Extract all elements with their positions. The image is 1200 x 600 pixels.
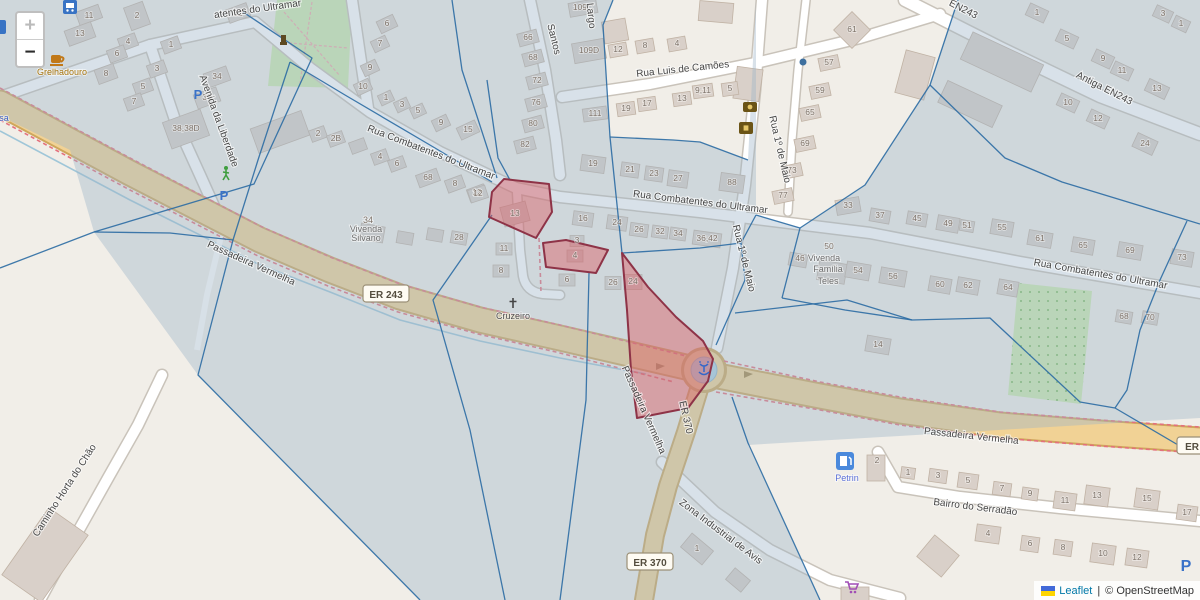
house-number: 50 bbox=[824, 241, 834, 251]
house-number: 33 bbox=[843, 200, 853, 210]
house-number: 7 bbox=[132, 96, 137, 106]
svg-text:ER 243: ER 243 bbox=[369, 290, 403, 301]
well-icon bbox=[743, 102, 757, 112]
building bbox=[601, 18, 628, 44]
house-number: 37 bbox=[875, 210, 885, 220]
house-number: 51 bbox=[962, 220, 972, 230]
house-number: 11 bbox=[500, 243, 509, 253]
house-number: 5 bbox=[966, 475, 971, 485]
house-number: 9 bbox=[1101, 53, 1106, 63]
tree-dot-icon bbox=[800, 59, 807, 66]
poi-label: sa bbox=[0, 113, 9, 123]
house-number: 11 bbox=[85, 10, 94, 20]
house-number: 34 bbox=[673, 228, 683, 238]
road-ref-badge: ER 243 bbox=[363, 285, 409, 302]
house-number: 49 bbox=[943, 218, 953, 228]
poi-label: Cruzeiro bbox=[496, 311, 530, 321]
poi-label: Família bbox=[813, 264, 843, 274]
house-number: 9;11 bbox=[695, 85, 711, 95]
house-number: 54 bbox=[853, 265, 863, 275]
house-number: 3 bbox=[155, 63, 160, 73]
house-number: 6 bbox=[385, 18, 390, 28]
house-number: 26 bbox=[634, 224, 644, 234]
house-number: 15 bbox=[463, 124, 473, 134]
map-tiles: P P P 11132468135732343638;38D6791013591… bbox=[0, 0, 1200, 600]
house-number: 9 bbox=[1028, 488, 1033, 498]
svg-text:ER 370: ER 370 bbox=[633, 558, 667, 569]
parking-icon: P bbox=[1181, 558, 1192, 575]
well-icon bbox=[739, 122, 753, 134]
road-ref-badge: ER 24 bbox=[1177, 437, 1200, 454]
house-number: 66 bbox=[523, 32, 533, 42]
house-number: 16 bbox=[578, 213, 588, 223]
house-number: 8 bbox=[1061, 542, 1066, 552]
house-number: 55 bbox=[997, 222, 1007, 232]
house-number: 7 bbox=[1000, 483, 1005, 493]
house-number: 27 bbox=[673, 173, 683, 183]
house-number: 13 bbox=[1152, 83, 1162, 93]
house-number: 19 bbox=[621, 103, 631, 113]
house-number: 24 bbox=[1140, 138, 1150, 148]
parking-icon: P bbox=[220, 188, 229, 203]
ukraine-flag-icon bbox=[1041, 586, 1055, 596]
house-number: 69 bbox=[800, 138, 810, 148]
house-number: 80 bbox=[528, 118, 538, 128]
house-number: 13 bbox=[677, 93, 687, 103]
house-number: 2 bbox=[875, 455, 880, 465]
cafe-icon bbox=[50, 55, 64, 66]
house-number: 23 bbox=[649, 168, 659, 178]
house-number: 76 bbox=[531, 97, 541, 107]
house-number: 21 bbox=[625, 164, 635, 174]
house-number: 59 bbox=[815, 85, 825, 95]
house-number: 1 bbox=[1035, 7, 1040, 17]
zoom-out-button[interactable]: − bbox=[17, 40, 43, 66]
house-number: 17 bbox=[1182, 507, 1192, 517]
house-number: 5 bbox=[728, 83, 733, 93]
house-number: 24 bbox=[628, 276, 638, 286]
house-number: 1 bbox=[695, 543, 700, 553]
house-number: 4 bbox=[573, 250, 578, 260]
house-number: 19 bbox=[588, 158, 598, 168]
svg-text:P: P bbox=[220, 188, 229, 203]
house-number: 62 bbox=[963, 280, 973, 290]
house-number: 68 bbox=[423, 172, 433, 182]
house-number: 2 bbox=[316, 128, 321, 138]
house-number: 13 bbox=[510, 208, 520, 218]
poi-label: Petrin bbox=[835, 473, 859, 483]
house-number: 8 bbox=[104, 68, 109, 78]
house-number: 8 bbox=[453, 178, 458, 188]
road-ref-badge: ER 370 bbox=[627, 553, 673, 570]
house-number: 82 bbox=[520, 139, 530, 149]
house-number: 5 bbox=[416, 105, 421, 115]
poi-label: Grelhadouro bbox=[37, 67, 87, 77]
house-number: 8 bbox=[643, 40, 648, 50]
house-number: 10 bbox=[1063, 97, 1073, 107]
house-number: 61 bbox=[1035, 233, 1045, 243]
house-number: 7 bbox=[378, 38, 383, 48]
house-number: 111 bbox=[589, 108, 602, 118]
house-number: 3 bbox=[1161, 8, 1166, 18]
house-number: 11 bbox=[1118, 65, 1127, 75]
house-number: 1 bbox=[169, 39, 174, 49]
attribution-separator: | bbox=[1097, 585, 1100, 597]
house-number: 38;38D bbox=[172, 123, 199, 133]
attribution-bar: Leaflet | © OpenStreetMap bbox=[1034, 581, 1200, 600]
building bbox=[698, 1, 734, 24]
house-number: 10 bbox=[358, 81, 368, 91]
house-number: 28 bbox=[454, 232, 464, 242]
house-number: 46 bbox=[795, 253, 805, 263]
house-number: 2 bbox=[135, 10, 140, 20]
map-canvas[interactable]: P P P 11132468135732343638;38D6791013591… bbox=[0, 0, 1200, 600]
osm-copyright[interactable]: © OpenStreetMap bbox=[1105, 585, 1194, 597]
house-number: 45 bbox=[912, 213, 922, 223]
house-number: 68 bbox=[528, 52, 538, 62]
house-number: 65 bbox=[805, 107, 815, 117]
house-number: 9 bbox=[368, 62, 373, 72]
house-number: 73 bbox=[1177, 252, 1187, 262]
house-number: 12 bbox=[473, 188, 483, 198]
house-number: 32 bbox=[655, 226, 665, 236]
poi-label: Vivenda bbox=[808, 253, 840, 263]
house-number: 2B bbox=[331, 133, 342, 143]
house-number: 10 bbox=[1098, 548, 1108, 558]
house-number: 4 bbox=[126, 36, 131, 46]
house-number: 36;42 bbox=[696, 233, 718, 243]
house-number: 61 bbox=[847, 24, 857, 34]
house-number: 12 bbox=[1093, 113, 1103, 123]
poi-blue-icon bbox=[0, 20, 6, 34]
house-number: 1 bbox=[384, 92, 389, 102]
zoom-control: + − bbox=[15, 11, 45, 68]
house-number: 4 bbox=[986, 528, 991, 538]
house-number: 12 bbox=[1132, 552, 1142, 562]
house-number: 15 bbox=[1142, 493, 1152, 503]
svg-text:P: P bbox=[1181, 558, 1192, 575]
fuel-station-icon bbox=[836, 452, 854, 470]
house-number: 56 bbox=[888, 271, 898, 281]
house-number: 3 bbox=[936, 470, 941, 480]
house-number: 57 bbox=[824, 57, 834, 67]
house-number: 6 bbox=[1028, 538, 1033, 548]
house-number: 6 bbox=[565, 274, 570, 284]
house-number: 60 bbox=[935, 279, 945, 289]
house-number: 13 bbox=[1092, 490, 1102, 500]
house-number: 4 bbox=[675, 38, 680, 48]
house-number: 109D bbox=[579, 45, 599, 55]
house-number: 4 bbox=[378, 151, 383, 161]
house-number: 14 bbox=[873, 339, 883, 349]
house-number: 5 bbox=[141, 81, 146, 91]
poi-label: Teles bbox=[817, 276, 839, 286]
house-number: 77 bbox=[778, 190, 788, 200]
house-number: 88 bbox=[727, 177, 737, 187]
house-number: 17 bbox=[642, 98, 652, 108]
house-number: 70 bbox=[1145, 312, 1155, 322]
house-number: 5 bbox=[1065, 33, 1070, 43]
house-number: 3 bbox=[575, 235, 580, 245]
house-number: 65 bbox=[1078, 240, 1088, 250]
house-number: 6 bbox=[395, 158, 400, 168]
leaflet-link[interactable]: Leaflet bbox=[1059, 585, 1092, 597]
house-number: 34 bbox=[212, 71, 222, 81]
house-number: 72 bbox=[532, 75, 542, 85]
svg-text:ER 24: ER 24 bbox=[1185, 442, 1200, 453]
house-number: 3 bbox=[400, 99, 405, 109]
house-number: 1 bbox=[1179, 18, 1184, 28]
house-number: 26 bbox=[608, 277, 618, 287]
house-number: 1 bbox=[906, 467, 911, 477]
house-number: 8 bbox=[499, 265, 504, 275]
house-number: 9 bbox=[439, 117, 444, 127]
house-number: 11 bbox=[1061, 495, 1070, 505]
house-number: 13 bbox=[75, 28, 85, 38]
statue-icon bbox=[280, 35, 287, 45]
house-number: 64 bbox=[1003, 282, 1013, 292]
house-number: 12 bbox=[613, 44, 623, 54]
poi-label: Silvano bbox=[351, 233, 381, 243]
bus-stop-icon[interactable] bbox=[63, 0, 77, 14]
zoom-in-button[interactable]: + bbox=[17, 13, 43, 40]
house-number: 68 bbox=[1119, 311, 1129, 321]
house-number: 24 bbox=[612, 217, 622, 227]
house-number: 69 bbox=[1125, 245, 1135, 255]
house-number: 6 bbox=[115, 48, 120, 58]
